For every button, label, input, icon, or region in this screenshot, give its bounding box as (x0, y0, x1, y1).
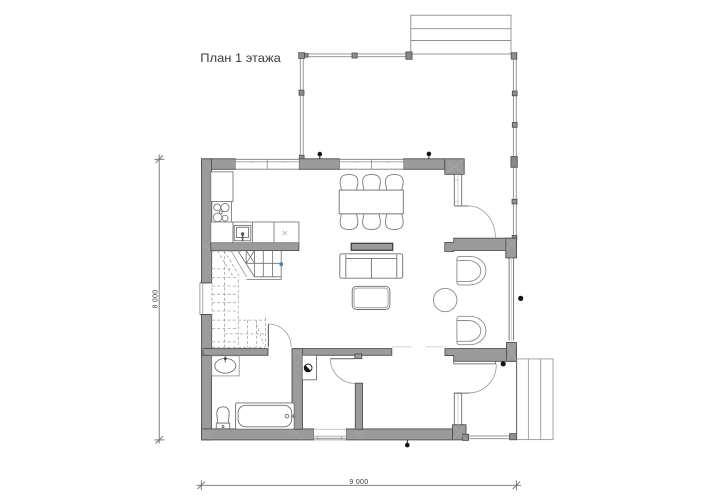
svg-text:9 000: 9 000 (349, 479, 368, 486)
svg-text:План 1 этажа: План 1 этажа (200, 51, 281, 65)
svg-text:8 000: 8 000 (153, 289, 160, 308)
